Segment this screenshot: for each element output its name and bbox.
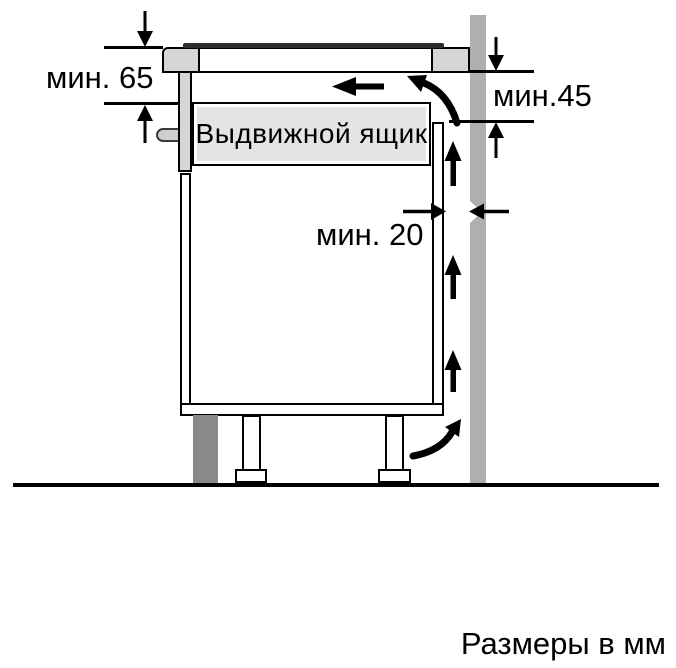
cabinet-left-panel bbox=[180, 173, 191, 405]
cabinet-bottom-panel bbox=[180, 403, 444, 416]
units-note: Размеры в мм bbox=[400, 626, 666, 662]
airflow-arrow-up2-shaft bbox=[451, 272, 457, 299]
dim-label-min20: мин. 20 bbox=[316, 219, 423, 252]
cabinet-right-panel bbox=[432, 122, 444, 405]
dim65-arrow-down-icon bbox=[137, 31, 153, 47]
wall-section bbox=[470, 15, 486, 485]
hob-side-bracket bbox=[178, 71, 192, 172]
hob-body-cutout bbox=[198, 47, 433, 73]
cabinet-leg-right-pad bbox=[380, 481, 409, 485]
airflow-arrow-up3-shaft bbox=[451, 367, 457, 392]
airflow-arrow-up2-icon bbox=[445, 255, 462, 275]
airflow-arrow-left-icon bbox=[332, 77, 356, 96]
dim45-arrow-up-icon bbox=[488, 122, 504, 138]
dim45-arrow-down-icon bbox=[488, 55, 504, 71]
dim65-arrow-up-icon bbox=[137, 105, 153, 121]
cabinet-leg-left-pad bbox=[237, 481, 265, 485]
installation-diagram: Выдвижной ящик bbox=[0, 0, 676, 668]
airflow-arrow-up1-icon bbox=[445, 141, 462, 161]
cabinet-leg-left bbox=[242, 415, 261, 471]
cabinet-plinth bbox=[193, 415, 218, 483]
drawer-box: Выдвижной ящик bbox=[192, 102, 431, 166]
hob-left-edge bbox=[162, 47, 200, 73]
airflow-curved-arrow-bottom bbox=[413, 432, 452, 456]
floor-line bbox=[13, 483, 659, 487]
hob-glass-surface bbox=[183, 43, 444, 48]
airflow-curved-arrow-bottom-icon bbox=[445, 419, 461, 437]
dim-label-min65: мин. 65 bbox=[46, 62, 153, 95]
airflow-arrow-up3-icon bbox=[445, 350, 462, 370]
countertop-right-section bbox=[431, 47, 470, 73]
cabinet-leg-right bbox=[385, 415, 404, 471]
drawer-label: Выдвижной ящик bbox=[196, 118, 428, 150]
airflow-arrow-up1-shaft bbox=[451, 158, 457, 186]
dim-label-min45: мин.45 bbox=[493, 80, 592, 113]
airflow-curved-arrow-top-icon bbox=[407, 75, 427, 92]
